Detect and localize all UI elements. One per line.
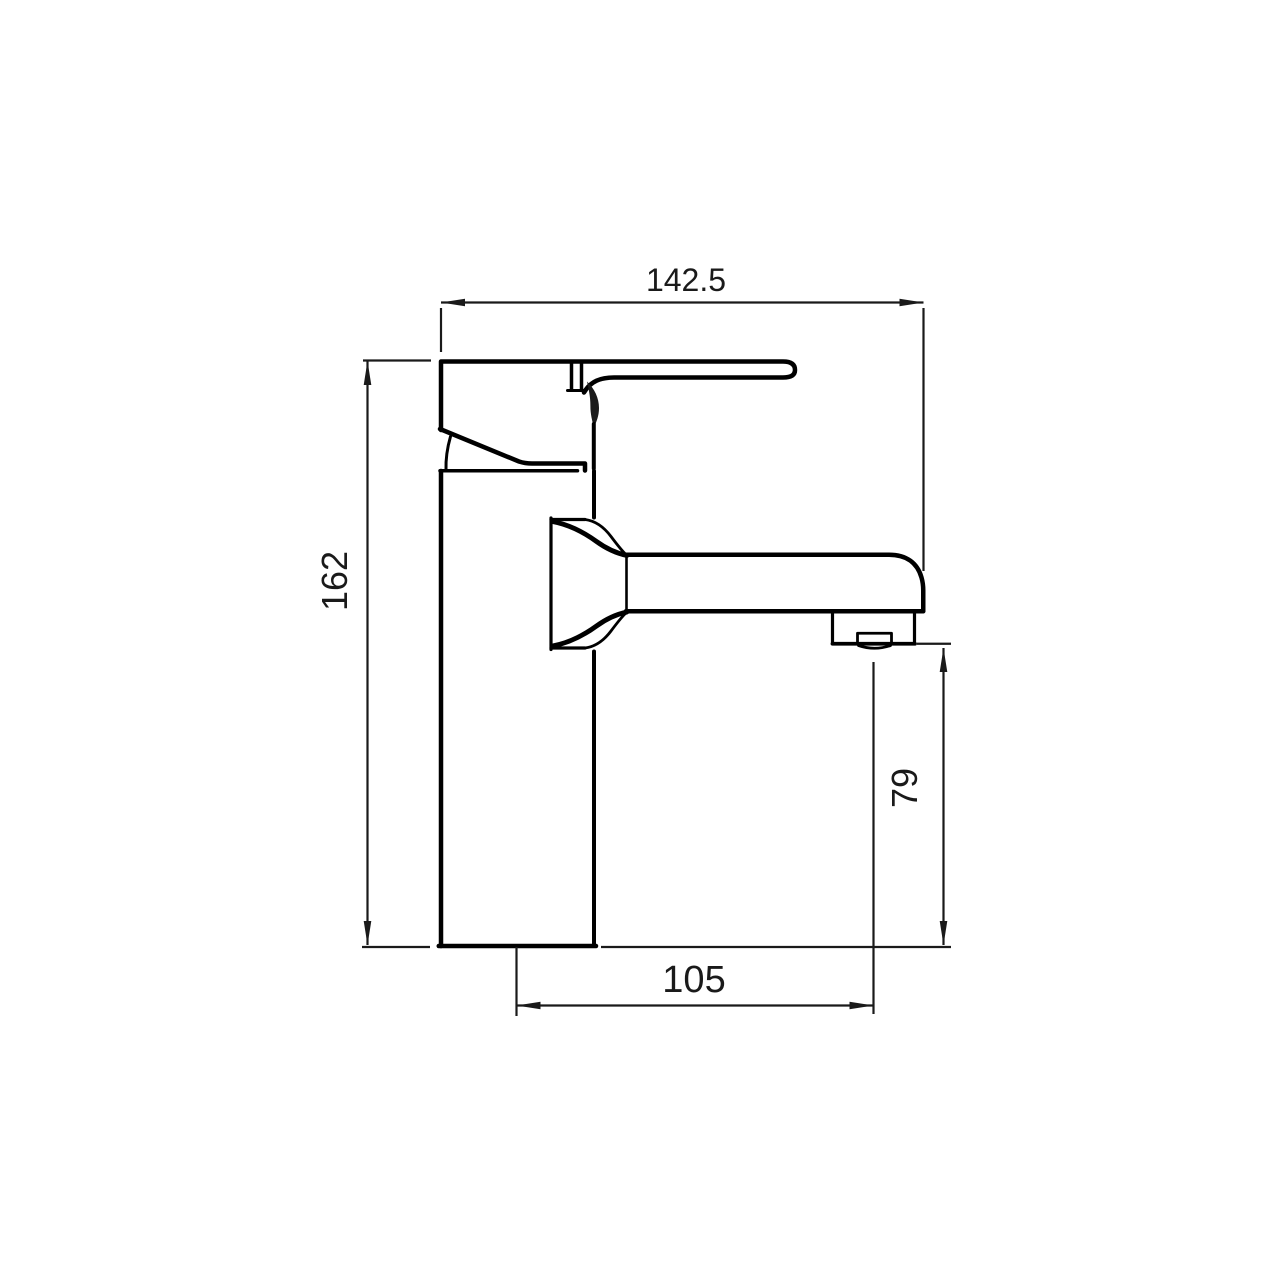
- escutcheon-bottom-curve-thick: [553, 612, 628, 646]
- dimension-overall-height-label: 162: [314, 551, 355, 611]
- drawing-canvas: 142.5 162 79 105: [0, 0, 1280, 1280]
- dimension-spout-reach-label: 105: [662, 959, 725, 1001]
- dim-reach-arrow-right: [850, 1002, 874, 1010]
- dimension-spout-height-label: 79: [884, 768, 925, 808]
- dimension-spout-reach: 105: [517, 662, 874, 1016]
- handle-left-curve: [446, 437, 451, 471]
- handle-hub-crescent: [587, 382, 599, 429]
- dim-spout-height-arrow-top: [940, 648, 948, 672]
- dim-top-arrow-left: [441, 299, 465, 307]
- dim-top-extension-lines: [441, 308, 924, 571]
- aerator-inner-notch: [858, 633, 892, 642]
- dim-reach-arrow-left: [517, 1002, 541, 1010]
- spout-top-right-edge: [626, 555, 923, 611]
- dim-height-arrow-bottom: [364, 921, 372, 945]
- aerator-dome: [859, 646, 891, 649]
- dim-top-arrow-right: [900, 299, 924, 307]
- handle-body-bottom: [440, 429, 585, 471]
- dim-height-extension-lines: [362, 361, 431, 948]
- handle-lever-outline: [441, 362, 795, 431]
- faucet-technical-drawing: 142.5 162 79 105: [0, 0, 1280, 1280]
- dimension-spout-height: 79: [601, 644, 951, 947]
- dim-height-arrow-top: [364, 361, 372, 385]
- escutcheon-top-curve-thick: [553, 522, 628, 556]
- handle-notch-lines: [572, 362, 582, 390]
- dim-spout-height-arrow-bottom: [940, 921, 948, 945]
- faucet-outline: [439, 362, 924, 947]
- dimension-top-width: 142.5: [441, 262, 924, 571]
- aerator-side-edges: [833, 614, 915, 644]
- dimension-overall-height: 162: [314, 361, 431, 948]
- dimension-top-width-label: 142.5: [646, 262, 726, 298]
